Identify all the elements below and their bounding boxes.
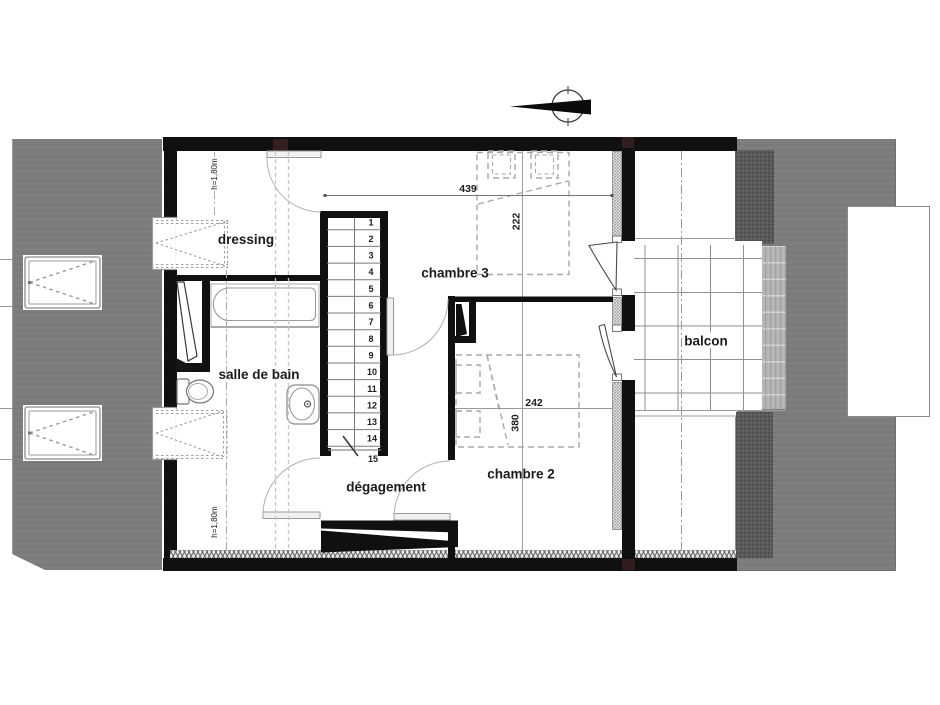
svg-text:222: 222	[511, 213, 523, 231]
svg-text:8: 8	[368, 334, 373, 344]
svg-text:1: 1	[368, 218, 373, 228]
svg-text:2: 2	[368, 234, 373, 244]
svg-text:14: 14	[367, 434, 377, 444]
svg-text:11: 11	[367, 384, 377, 394]
svg-text:h=1,80m: h=1,80m	[210, 158, 219, 190]
svg-text:12: 12	[367, 401, 377, 411]
svg-text:dressing: dressing	[218, 232, 274, 247]
svg-text:dégagement: dégagement	[346, 480, 426, 495]
svg-text:chambre 3: chambre 3	[421, 266, 489, 281]
svg-text:3: 3	[368, 251, 373, 261]
svg-text:9: 9	[368, 351, 373, 361]
svg-text:439: 439	[459, 183, 477, 195]
svg-text:242: 242	[525, 397, 543, 409]
svg-text:salle de bain: salle de bain	[218, 367, 299, 382]
svg-text:6: 6	[368, 301, 373, 311]
svg-text:380: 380	[510, 414, 522, 432]
svg-text:chambre 2: chambre 2	[487, 467, 555, 482]
svg-text:5: 5	[368, 284, 373, 294]
svg-text:4: 4	[368, 267, 373, 277]
svg-text:h=1,80m: h=1,80m	[210, 506, 219, 538]
svg-text:10: 10	[367, 367, 377, 377]
svg-text:balcon: balcon	[684, 334, 728, 349]
svg-text:15: 15	[368, 454, 378, 464]
svg-text:7: 7	[368, 317, 373, 327]
svg-text:13: 13	[367, 417, 377, 427]
